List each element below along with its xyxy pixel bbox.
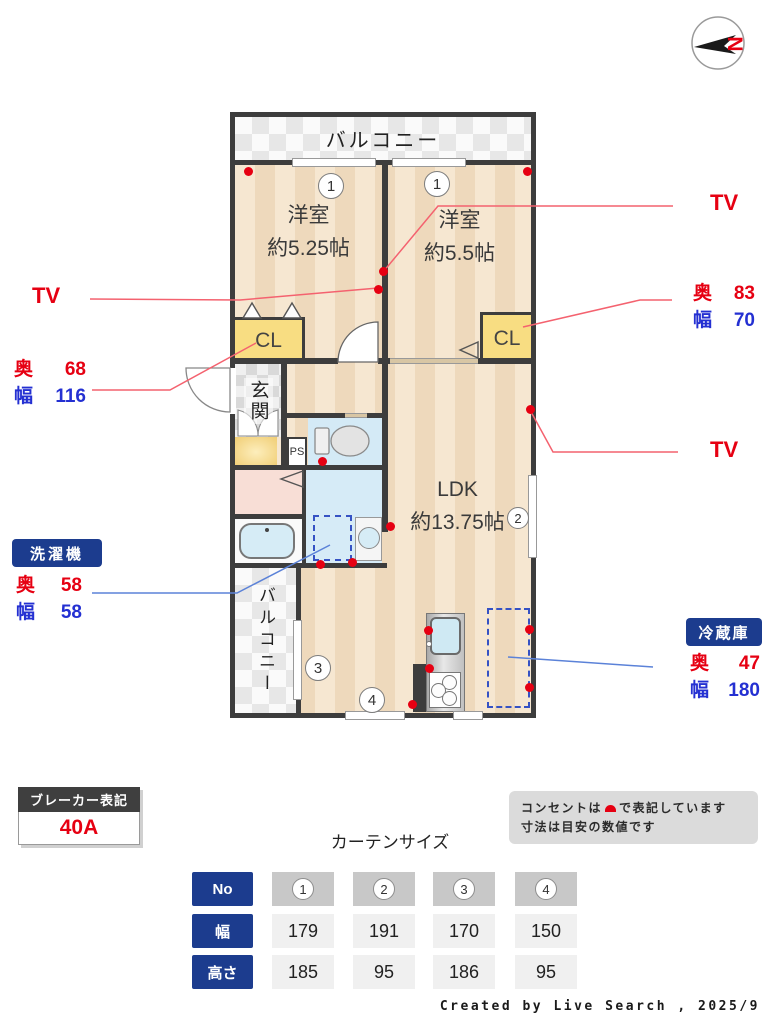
outlet-legend-icon — [605, 805, 616, 812]
note-box: コンセントはで表記しています 寸法は目安の数値です — [509, 791, 758, 844]
leader-line-fridge — [508, 657, 653, 667]
curtain-width-cell: 170 — [433, 914, 495, 948]
washer-badge: 洗濯機 — [12, 539, 102, 567]
bedroom-right-size: 約5.5帖 — [388, 238, 531, 271]
outlet-marker — [374, 285, 383, 294]
note-line1-after: で表記しています — [619, 801, 727, 815]
curtain-col-number: 3 — [453, 878, 475, 900]
fold-door-marker — [283, 303, 301, 318]
curtain-col-header: 4 — [515, 872, 577, 906]
washroom-door-marker — [281, 471, 303, 487]
curtain-col-header: 1 — [272, 872, 334, 906]
curtain-width-cell: 179 — [272, 914, 334, 948]
width-label: 幅 — [14, 383, 33, 410]
closet-left-dimensions: 奥 68 幅 116 — [14, 356, 86, 410]
breaker-value: 40A — [18, 812, 140, 845]
window-number-1b: 1 — [424, 171, 450, 197]
entrance-label-wrap: 玄関 — [235, 368, 281, 434]
depth-value: 83 — [734, 280, 755, 307]
window-number-1: 1 — [318, 173, 344, 199]
curtain-col-header: 2 — [353, 872, 415, 906]
leader-line-washer — [92, 545, 330, 593]
outlet-marker — [523, 167, 532, 176]
plan-overlay — [0, 0, 768, 1024]
width-value: 180 — [728, 677, 760, 704]
curtain-col-number: 2 — [373, 878, 395, 900]
tv-annotation-right-middle: TV — [710, 437, 738, 463]
curtain-row-header-height: 高さ — [192, 955, 253, 989]
width-label: 幅 — [16, 599, 35, 626]
washer-dimensions: 奥 58 幅 58 — [16, 572, 82, 626]
curtain-width-cell: 150 — [515, 914, 577, 948]
fridge-dimensions: 奥 47 幅 180 — [690, 650, 760, 704]
outlet-marker — [244, 167, 253, 176]
closet-right-dimensions: 奥 83 幅 70 — [693, 280, 755, 334]
leader-line-tv-right-middle — [530, 410, 678, 452]
depth-value: 68 — [65, 356, 86, 383]
outlet-marker — [379, 267, 388, 276]
outlet-marker — [526, 405, 535, 414]
closet-door-marker — [460, 342, 478, 358]
ldk-name: LDK — [390, 474, 525, 507]
leader-line-closet-left — [92, 343, 256, 390]
curtain-height-cell: 185 — [272, 955, 334, 989]
outlet-marker — [386, 522, 395, 531]
curtain-height-cell: 186 — [433, 955, 495, 989]
door-swing-bedroom — [338, 322, 378, 362]
toilet-icon — [331, 426, 369, 456]
curtain-col-header: 3 — [433, 872, 495, 906]
floorplan-page: N バルコニー PS バルコニー CL CL — [0, 0, 768, 1024]
fridge-badge: 冷蔵庫 — [686, 618, 762, 646]
depth-label: 奥 — [693, 280, 712, 307]
width-label: 幅 — [690, 677, 709, 704]
bedroom-left-name: 洋室 — [235, 200, 382, 233]
window-number-3: 3 — [305, 655, 331, 681]
note-line-2: 寸法は目安の数値です — [521, 818, 746, 837]
width-label: 幅 — [693, 307, 712, 334]
entrance-label: 玄関 — [244, 378, 273, 424]
toilet-tank-icon — [315, 428, 329, 454]
door-swing-entrance — [186, 368, 230, 412]
outlet-marker — [424, 626, 433, 635]
curtain-height-cell: 95 — [515, 955, 577, 989]
bedroom-right-label: 洋室 約5.5帖 — [388, 205, 531, 270]
bedroom-right-name: 洋室 — [388, 205, 531, 238]
depth-label: 奥 — [14, 356, 33, 383]
depth-value: 58 — [61, 572, 82, 599]
curtain-width-cell: 191 — [353, 914, 415, 948]
outlet-marker — [425, 664, 434, 673]
curtain-col-number: 4 — [535, 878, 557, 900]
depth-label: 奥 — [690, 650, 709, 677]
width-value: 116 — [55, 383, 86, 410]
window-number-2: 2 — [507, 507, 529, 529]
width-value: 70 — [734, 307, 755, 334]
curtain-col-number: 1 — [292, 878, 314, 900]
tv-annotation-left: TV — [32, 283, 60, 309]
curtain-row-header-no: No — [192, 872, 253, 906]
leader-line-closet-right — [523, 300, 672, 327]
leader-line-tv-left — [90, 288, 378, 300]
bedroom-left-label: 洋室 約5.25帖 — [235, 200, 382, 265]
window-number-4: 4 — [359, 687, 385, 713]
ldk-size: 約13.75帖 — [390, 507, 525, 540]
credit-line: Created by Live Search , 2025/9 — [430, 999, 760, 1014]
curtain-row-header-width: 幅 — [192, 914, 253, 948]
outlet-marker — [525, 683, 534, 692]
tv-annotation-right-top: TV — [710, 190, 738, 216]
breaker-box: ブレーカー表記 40A — [18, 787, 140, 845]
note-line1-before: コンセントは — [521, 801, 602, 815]
outlet-marker — [525, 625, 534, 634]
note-line-1: コンセントはで表記しています — [521, 799, 746, 818]
outlet-marker — [408, 700, 417, 709]
curtain-table-title: カーテンサイズ — [300, 828, 480, 853]
fold-door-marker — [243, 303, 261, 318]
depth-value: 47 — [739, 650, 760, 677]
breaker-title: ブレーカー表記 — [18, 787, 140, 812]
depth-label: 奥 — [16, 572, 35, 599]
ldk-label: LDK 約13.75帖 — [390, 474, 525, 539]
outlet-marker — [318, 457, 327, 466]
outlet-marker — [348, 558, 357, 567]
curtain-height-cell: 95 — [353, 955, 415, 989]
width-value: 58 — [61, 599, 82, 626]
bedroom-left-size: 約5.25帖 — [235, 233, 382, 266]
outlet-marker — [316, 560, 325, 569]
